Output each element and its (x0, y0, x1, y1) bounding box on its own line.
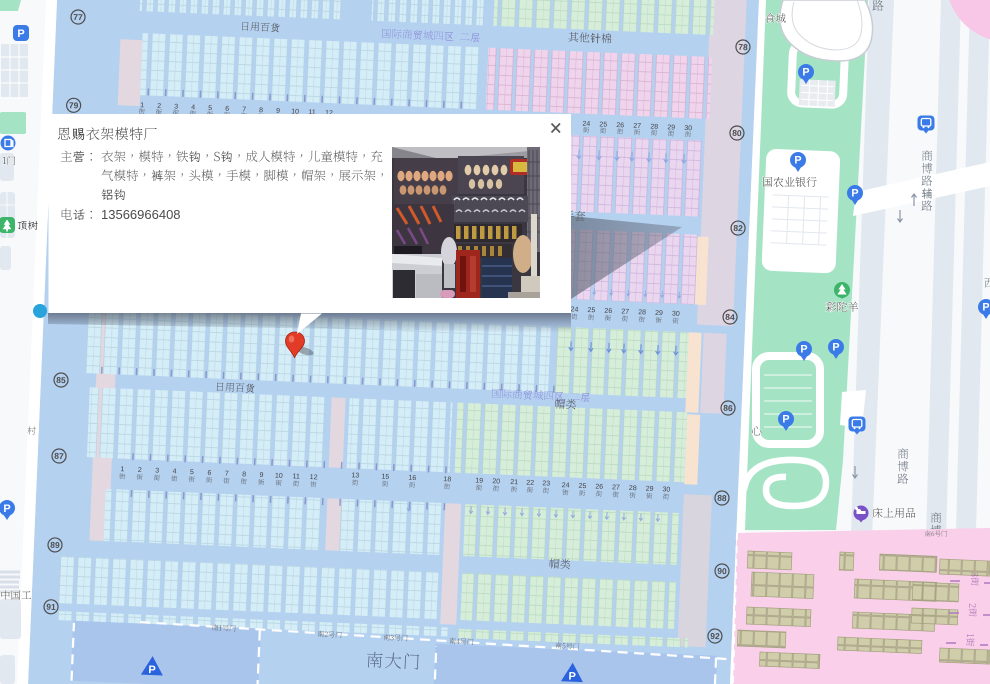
svg-text:30: 30 (672, 311, 680, 318)
svg-text:24: 24 (562, 482, 570, 489)
svg-text:25: 25 (587, 307, 595, 314)
svg-text:5: 5 (190, 469, 194, 476)
svg-text:2: 2 (138, 467, 142, 474)
svg-text:P: P (568, 671, 576, 683)
svg-text:92: 92 (710, 631, 720, 641)
svg-text:23: 23 (542, 480, 550, 487)
svg-text:11: 11 (292, 473, 300, 480)
svg-text:P: P (782, 414, 789, 426)
svg-text:6: 6 (225, 106, 229, 113)
svg-text:9: 9 (276, 108, 280, 115)
svg-text:27: 27 (621, 308, 629, 315)
svg-text:30: 30 (684, 125, 692, 132)
svg-text:25: 25 (578, 483, 586, 490)
svg-text:19: 19 (475, 477, 483, 484)
svg-text:84: 84 (725, 312, 735, 322)
svg-text:8: 8 (242, 471, 246, 478)
svg-text:26: 26 (604, 308, 612, 315)
svg-text:85: 85 (56, 375, 66, 385)
svg-text:2: 2 (157, 103, 161, 110)
svg-text:P: P (851, 188, 858, 200)
svg-text:28: 28 (650, 123, 658, 130)
svg-text:12: 12 (310, 474, 318, 481)
svg-text:18: 18 (443, 476, 451, 483)
svg-text:77: 77 (73, 12, 83, 22)
svg-text:P: P (17, 28, 24, 40)
svg-text:29: 29 (667, 124, 675, 131)
svg-text:30: 30 (662, 486, 670, 493)
svg-text:78: 78 (738, 42, 748, 52)
svg-text:24: 24 (582, 121, 590, 128)
svg-text:8: 8 (259, 107, 263, 114)
svg-text:1: 1 (120, 466, 124, 473)
svg-text:P: P (3, 503, 10, 515)
svg-text:P: P (832, 342, 839, 354)
svg-text:80: 80 (732, 128, 742, 138)
svg-text:3: 3 (174, 104, 178, 111)
svg-text:86: 86 (723, 403, 733, 413)
svg-text:P: P (794, 155, 801, 167)
svg-text:15: 15 (381, 474, 389, 481)
svg-text:1: 1 (140, 102, 144, 109)
svg-text:4: 4 (191, 104, 195, 111)
svg-text:22: 22 (526, 480, 534, 487)
svg-text:P: P (148, 664, 156, 676)
svg-text:24: 24 (570, 306, 578, 313)
svg-text:79: 79 (69, 100, 79, 110)
svg-text:P: P (802, 67, 809, 79)
svg-text:7: 7 (242, 106, 246, 113)
svg-text:28: 28 (629, 485, 637, 492)
svg-text:90: 90 (717, 566, 727, 576)
svg-text:5: 5 (208, 105, 212, 112)
svg-text:P: P (982, 302, 989, 314)
svg-text:26: 26 (595, 483, 603, 490)
svg-text:21: 21 (510, 479, 518, 486)
svg-text:29: 29 (646, 486, 654, 493)
svg-text:P: P (800, 344, 807, 356)
svg-text:28: 28 (638, 309, 646, 316)
svg-text:25: 25 (599, 121, 607, 128)
svg-text:82: 82 (733, 223, 743, 233)
svg-text:3: 3 (155, 468, 159, 475)
svg-text:91: 91 (46, 602, 56, 612)
svg-text:13: 13 (351, 472, 359, 479)
svg-text:26: 26 (616, 122, 624, 129)
svg-text:7: 7 (225, 470, 229, 477)
svg-text:27: 27 (612, 484, 620, 491)
svg-text:20: 20 (492, 478, 500, 485)
svg-text:29: 29 (655, 310, 663, 317)
svg-text:6: 6 (207, 470, 211, 477)
svg-text:10: 10 (275, 473, 283, 480)
svg-text:13566966408: 13566966408 (101, 207, 181, 222)
svg-text:4: 4 (172, 468, 176, 475)
svg-text:16: 16 (408, 475, 416, 482)
svg-text:27: 27 (633, 123, 641, 130)
svg-text:89: 89 (50, 540, 60, 550)
svg-text:87: 87 (54, 451, 64, 461)
svg-text:9: 9 (259, 472, 263, 479)
svg-text:88: 88 (717, 493, 727, 503)
